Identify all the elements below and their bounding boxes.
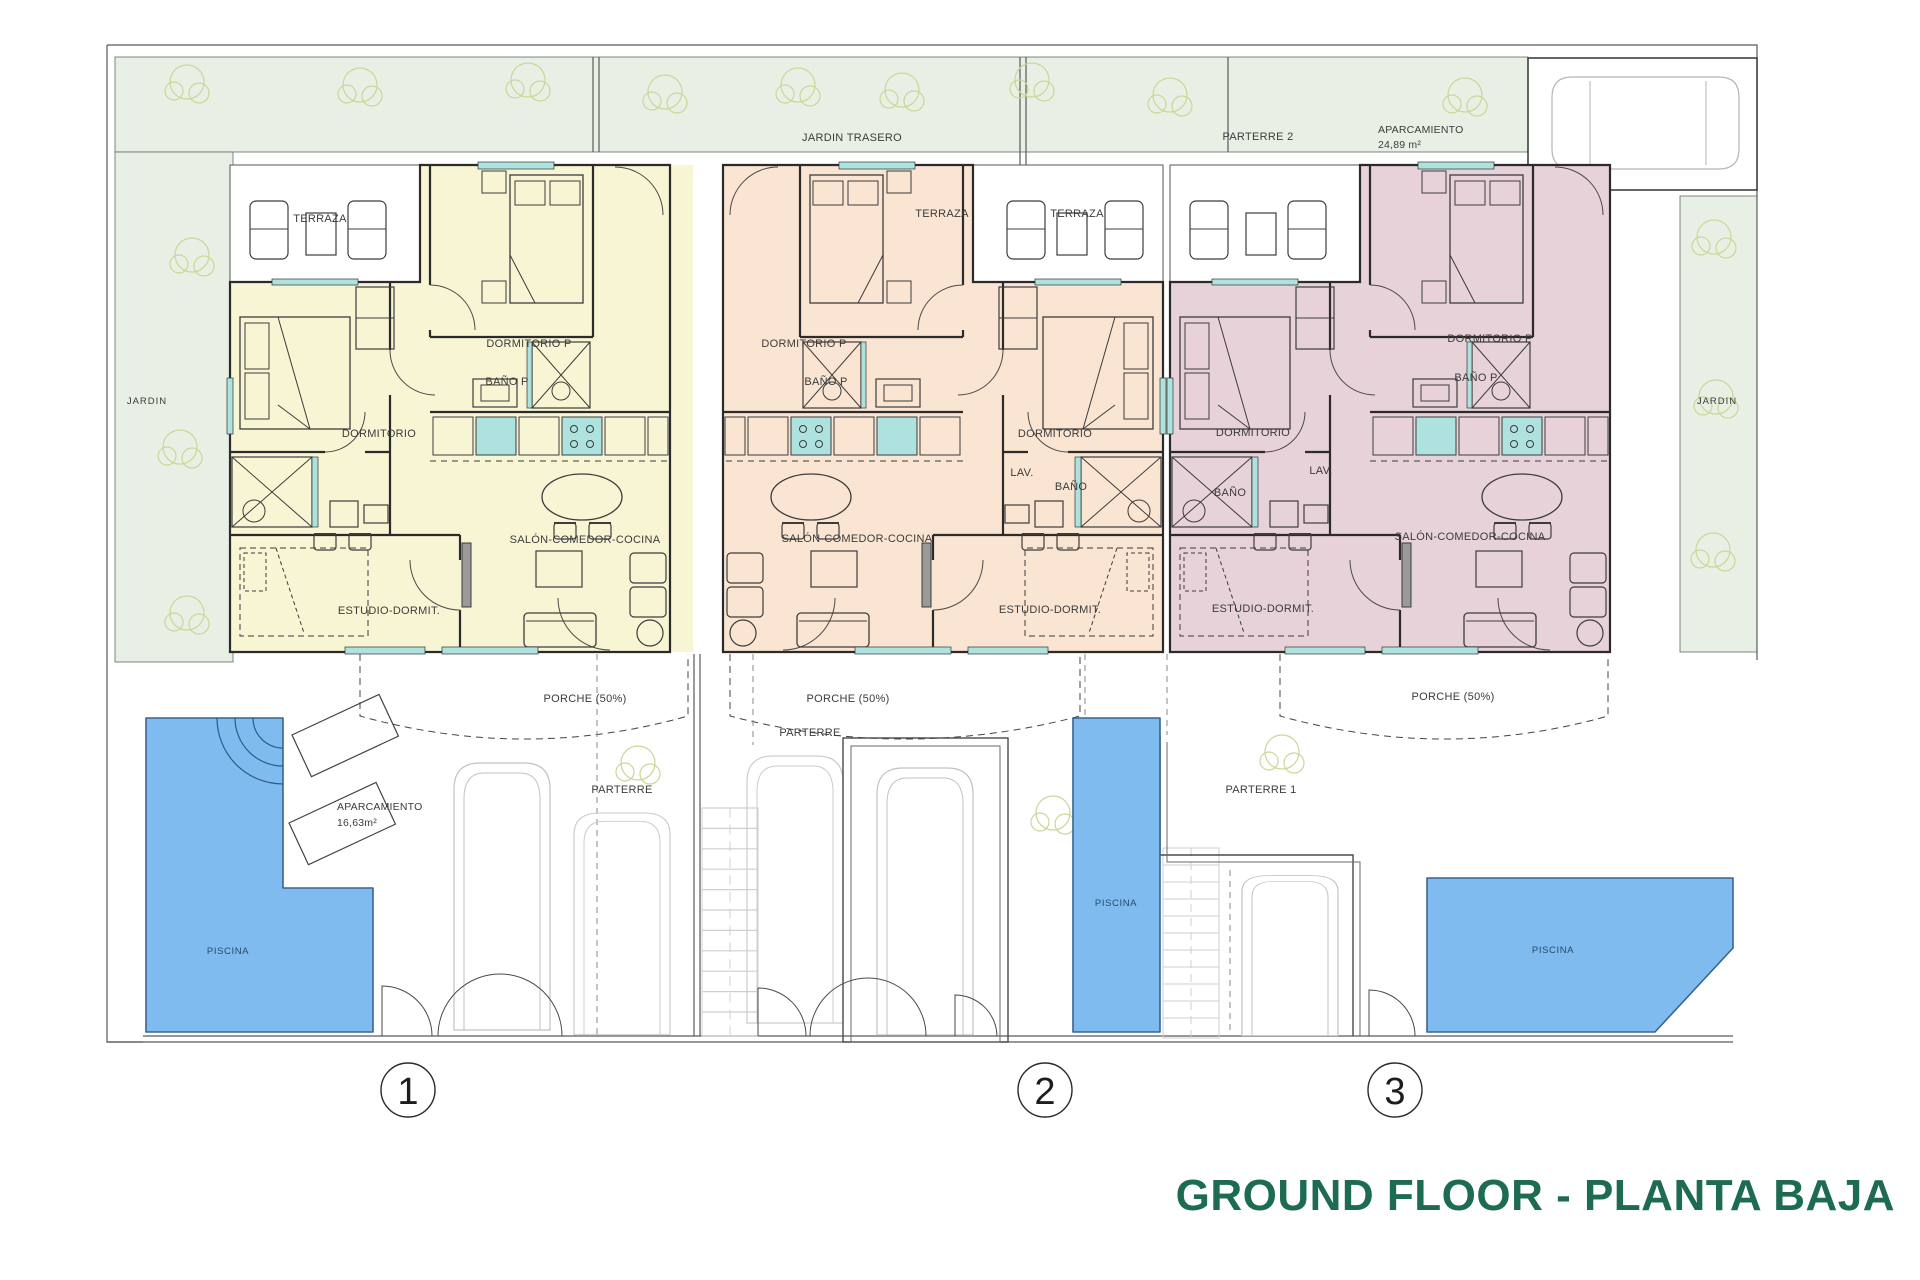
parterre1-label: PARTERRE 1 [1225, 784, 1296, 796]
unit2-dormitorio-p-label: DORMITORIO P [761, 338, 846, 350]
unit1-bano-p-label: BAÑO P [485, 375, 528, 388]
parterre-label-b: PARTERRE [591, 784, 652, 796]
unit2-number: 2 [1034, 1071, 1055, 1113]
unit1-terraza-label: TERRAZA [293, 213, 347, 225]
unit1-dormitorio-label: DORMITORIO [342, 428, 416, 440]
pool-left-label: PISCINA [207, 946, 249, 957]
parking-top-area: 24,89 m² [1378, 139, 1421, 151]
driveway-car-unit3 [1242, 876, 1338, 1036]
unit3-terraza-label: TERRAZA [1050, 208, 1104, 220]
unit2-lav-label: LAV. [1010, 467, 1033, 479]
driveways [289, 694, 1360, 1042]
page-title: GROUND FLOOR - PLANTA BAJA [1176, 1171, 1895, 1220]
unit3-number: 3 [1384, 1071, 1405, 1113]
unit2-estudio-label: ESTUDIO-DORMIT. [999, 604, 1101, 616]
unit2-bano-p-label: BAÑO P [804, 375, 847, 388]
unit2-porche-label: PORCHE (50%) [806, 693, 889, 705]
pool-right-label: PISCINA [1532, 945, 1574, 956]
unit2-bano-label: BAÑO [1055, 480, 1088, 493]
unit1-salon-label: SALÓN-COMEDOR-COCINA [510, 533, 661, 546]
site-plan-drawing: JARDIN TRASERO PARTERRE 2 APARCAMIENTO 2… [0, 0, 1920, 1280]
pool-middle [1073, 718, 1160, 1032]
unit3-bano-label: BAÑO [1214, 486, 1247, 499]
unit1-porche-label: PORCHE (50%) [543, 693, 626, 705]
parterre-label-a: PARTERRE [779, 727, 840, 739]
unit-1-floorplan [227, 162, 693, 654]
unit3-dormitorio-p-label: DORMITORIO P [1447, 333, 1532, 345]
unit1-number: 1 [397, 1071, 418, 1113]
gate-arcs [382, 974, 1415, 1036]
unit3-salon-label: SALÓN-COMEDOR-COCINA [1395, 530, 1546, 543]
unit-2-floorplan [723, 162, 1166, 654]
unit2-dormitorio-label: DORMITORIO [1018, 428, 1092, 440]
unit-3-floorplan [1167, 162, 1610, 654]
steps-unit3 [1163, 848, 1219, 1038]
driveway-car-unit2a [747, 756, 843, 1023]
back-garden-label: JARDIN TRASERO [802, 132, 902, 144]
driveway-car-unit1b [574, 813, 670, 1035]
pool-left [146, 718, 373, 1032]
unit3-porche-label: PORCHE (50%) [1411, 691, 1494, 703]
parking-top-label: APARCAMIENTO [1378, 124, 1463, 136]
parking-left-area: 16,63m² [337, 817, 377, 829]
left-garden-strip [115, 152, 233, 662]
unit1-estudio-label: ESTUDIO-DORMIT. [338, 605, 440, 617]
right-garden-label: JARDIN [1697, 396, 1737, 407]
steps-between-lots-1-2 [702, 808, 758, 1036]
right-garden-strip [1680, 196, 1757, 652]
parking-left-label: APARCAMIENTO [337, 801, 422, 813]
parked-car-left-1 [292, 694, 398, 776]
unit2-terraza-label: TERRAZA [915, 208, 969, 220]
unit3-lav-label: LAV. [1309, 465, 1332, 477]
unit-number-badges: 1 2 3 [381, 1063, 1422, 1117]
porch-outlines [360, 654, 1608, 1035]
unit2-parking-court [843, 738, 1008, 1042]
left-garden-label: JARDIN [127, 396, 167, 407]
unit3-estudio-label: ESTUDIO-DORMIT. [1212, 603, 1314, 615]
unit3-bano-p-label: BAÑO P [1454, 371, 1497, 384]
pool-right [1427, 878, 1733, 1032]
parterre2-label: PARTERRE 2 [1222, 131, 1293, 143]
pool-middle-label: PISCINA [1095, 898, 1137, 909]
unit2-salon-label: SALÓN-COMEDOR-COCINA [782, 532, 933, 545]
pools [146, 718, 1733, 1032]
unit1-dormitorio-p-label: DORMITORIO P [486, 338, 571, 350]
unit3-dormitorio-label: DORMITORIO [1216, 427, 1290, 439]
driveway-car-unit1 [454, 763, 550, 1030]
floor-plan-page: JARDIN TRASERO PARTERRE 2 APARCAMIENTO 2… [0, 0, 1920, 1280]
